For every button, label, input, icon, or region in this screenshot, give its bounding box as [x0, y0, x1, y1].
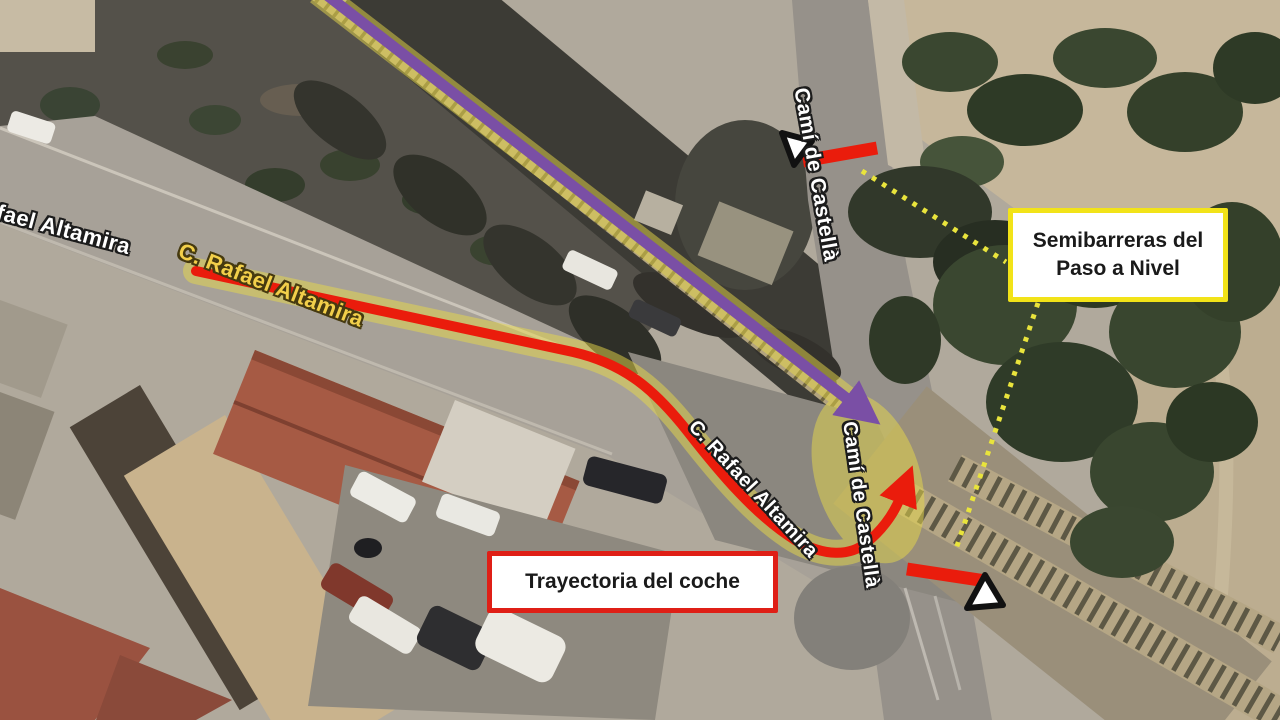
- annotated-satellite-map: afael Altamira C. Rafael Altamira Camí d…: [0, 0, 1280, 720]
- callout-semibarreras-line2: Paso a Nivel: [1056, 255, 1180, 283]
- callout-trayectoria: Trayectoria del coche: [487, 551, 778, 613]
- callout-semibarreras: Semibarreras del Paso a Nivel: [1008, 208, 1228, 302]
- callout-semibarreras-line1: Semibarreras del: [1033, 227, 1203, 255]
- callout-trayectoria-label: Trayectoria del coche: [525, 570, 740, 594]
